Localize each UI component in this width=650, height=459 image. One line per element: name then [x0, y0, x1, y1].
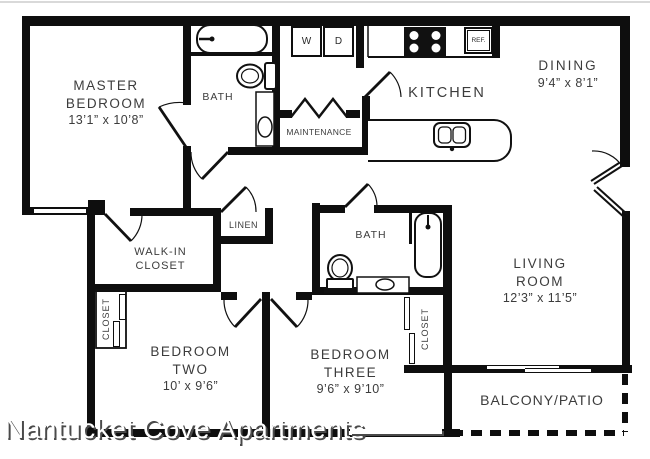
bathtub-icon: [197, 25, 267, 53]
entry-chamfer-wall: [594, 187, 628, 218]
walkin-closet-door: [105, 214, 142, 241]
stove-icon: [404, 27, 446, 56]
toilet-icon: [324, 255, 356, 293]
bifold-doors: [291, 99, 347, 117]
toilet-icon: [237, 63, 276, 89]
master-bedroom-door: [159, 102, 187, 147]
bath-one-door: [191, 152, 228, 179]
watermark-text: Nantucket Cove Apartments: [4, 413, 365, 445]
sink-vanity-icon: [357, 277, 409, 293]
sink-vanity-icon: [256, 92, 274, 146]
entry-door: [591, 151, 622, 184]
bedroom-two-door: [224, 299, 261, 327]
bathtub-icon: [415, 213, 441, 277]
watermark-dash: [350, 429, 442, 434]
closet-box: [96, 290, 126, 348]
fixtures-and-doors-layer: [0, 0, 650, 459]
bedroom-three-door: [271, 299, 308, 327]
kitchen-sink-icon: [434, 123, 470, 151]
floor-plan: W D REF. D.W. MASTER BEDROOM 13’1” x 10’…: [0, 0, 650, 459]
bath-two-door: [345, 184, 377, 207]
kitchen-door: [364, 72, 401, 98]
linen-door: [221, 187, 256, 212]
